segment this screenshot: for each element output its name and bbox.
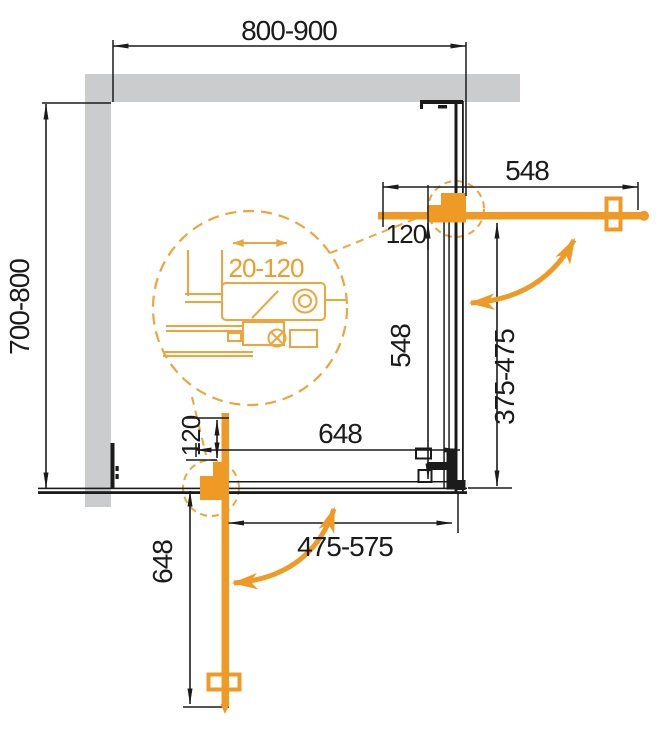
swing-arrow-top: [471, 240, 574, 303]
dim-bottom-opening-label: 475-575: [297, 531, 393, 562]
door-top-end-cap: [639, 211, 649, 221]
wall-bracket-left: [111, 443, 119, 489]
dim-door-left-label: 648: [147, 540, 178, 584]
detail-circle: [153, 211, 347, 405]
dim-side-opening-label: 375-475: [489, 329, 520, 425]
dim-bottom-fixed-label: 648: [318, 418, 362, 449]
drawing-page: 800-900 700-800 548 120 548 375-475 648 …: [0, 0, 661, 732]
dim-offset-left-label: 120: [176, 415, 206, 456]
side-fixed-panel: [443, 101, 464, 493]
dim-width-label: 800-900: [241, 15, 337, 46]
dim-side-fixed-label: 548: [385, 324, 416, 368]
dim-depth-label: 700-800: [4, 259, 35, 355]
dim-adjustment-label: 20-120: [229, 253, 304, 283]
door-left-end-cap: [221, 704, 230, 714]
diagram-canvas: 800-900 700-800 548 120 548 375-475 648 …: [0, 0, 661, 732]
dim-offset-top-label: 120: [386, 219, 427, 249]
dim-door-top-label: 548: [505, 155, 549, 186]
pivot-block-left: [200, 462, 229, 500]
pivot-block-top: [428, 193, 466, 223]
dimension-lines: [46, 46, 638, 704]
left-wall: [85, 74, 111, 507]
extension-lines: [42, 40, 638, 707]
door-panel-left: [222, 413, 230, 705]
corner-connector: [416, 449, 466, 491]
top-wall: [85, 74, 520, 102]
